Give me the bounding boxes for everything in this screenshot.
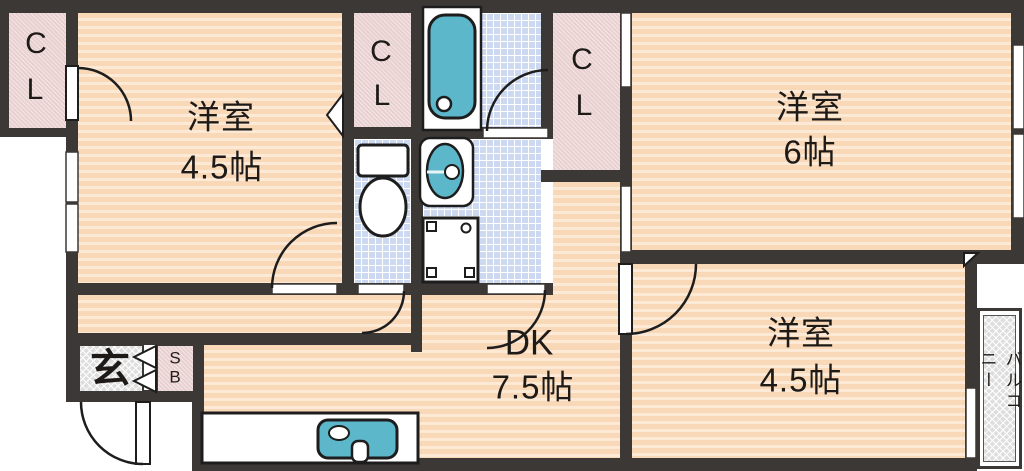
toilet-icon: [358, 145, 408, 236]
window: [66, 152, 78, 202]
western-room-1-name: 洋室: [187, 101, 255, 134]
shoe-box-label: S: [169, 350, 180, 367]
door-opening: [483, 128, 548, 138]
western-room-1-size: 4.5帖: [181, 151, 264, 184]
closet-right-label: L: [576, 91, 593, 121]
western-room-3-size: 4.5帖: [760, 364, 843, 397]
bathtub-icon: [423, 7, 481, 130]
western-room-3-name: 洋室: [767, 317, 835, 350]
floorplan: バルコニー: [0, 0, 1024, 471]
closet-middle-label: L: [374, 81, 391, 111]
window: [1013, 134, 1024, 218]
door-swing-arc: [487, 70, 548, 131]
dk-name: DK: [505, 326, 554, 361]
entrance-door-leaf: [136, 402, 150, 464]
window: [1013, 45, 1024, 129]
window: [66, 204, 78, 252]
door-swing-arc: [78, 68, 131, 121]
washing-machine-pan-icon: [423, 218, 478, 282]
closet-middle-label: C: [370, 37, 392, 67]
western-room-2-name: 洋室: [776, 91, 844, 124]
door-swing-arc: [272, 223, 337, 288]
door-leaf: [619, 264, 632, 334]
closet-top-left-label: C: [25, 29, 47, 59]
door-opening: [272, 284, 337, 294]
closet-right-label: C: [571, 45, 593, 75]
door-leaf: [66, 66, 78, 120]
entrance-label: 玄: [90, 349, 130, 389]
door-opening: [358, 284, 404, 294]
western-room-2-size: 6帖: [783, 136, 836, 169]
door-opening: [487, 284, 545, 294]
closet-opening: [621, 13, 631, 87]
folding-door-icon: [327, 94, 343, 136]
shoe-box-label: B: [169, 369, 180, 386]
folding-door-icon: [134, 346, 156, 368]
washbasin-icon: [420, 138, 473, 206]
kitchen-sink-icon: [202, 413, 418, 463]
window: [966, 388, 976, 458]
door-swing-arc: [362, 291, 404, 333]
door-opening: [621, 186, 631, 252]
entrance-door-swing-arc: [81, 402, 143, 464]
dk-size: 7.5帖: [492, 371, 575, 404]
closet-top-left-label: L: [27, 75, 44, 105]
balcony-opening-mark: [964, 253, 978, 266]
door-swing-arc: [626, 264, 696, 334]
folding-door-icon: [134, 370, 156, 392]
